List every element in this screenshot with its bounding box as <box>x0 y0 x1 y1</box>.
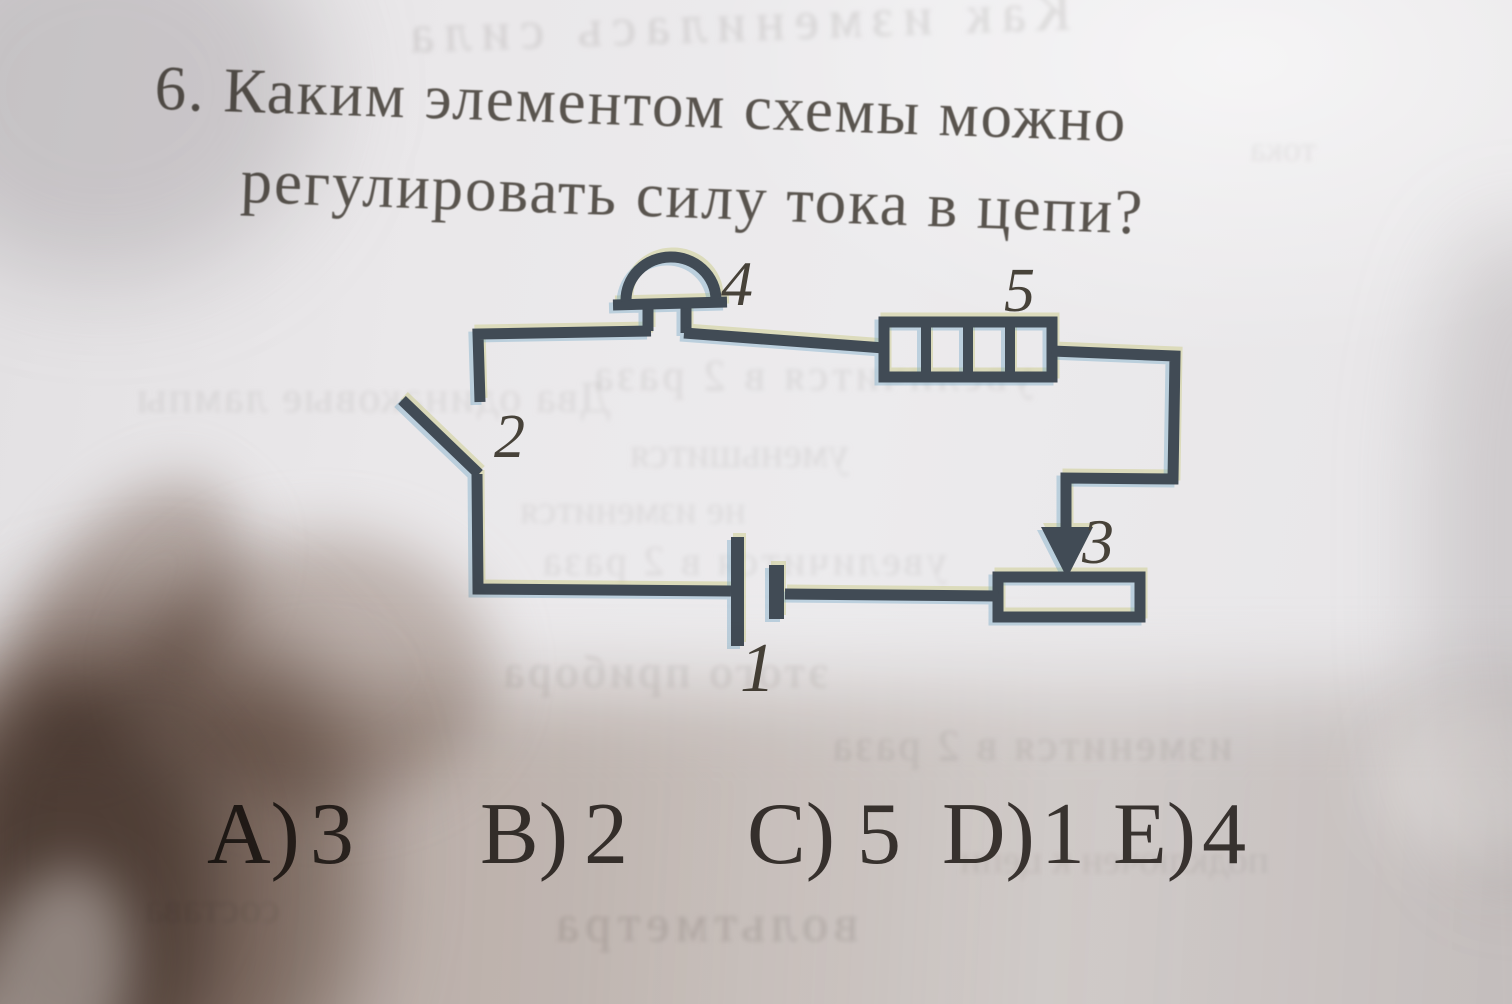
answer-value: 3 <box>310 791 354 879</box>
answer-option-a: A)3 <box>207 791 354 879</box>
answer-value: 4 <box>1202 791 1246 879</box>
answer-option-d: D)1 <box>942 791 1085 879</box>
answer-option-e: E)4 <box>1113 791 1246 879</box>
answer-option-c: C)5 <box>747 791 901 879</box>
photographed-textbook-page: Как изменилась сила тока увеличится в 2 … <box>0 0 1512 1004</box>
answer-value: 5 <box>857 791 901 879</box>
answer-letter: A) <box>207 786 300 883</box>
answer-value: 1 <box>1041 791 1085 879</box>
label-bell: 4 <box>721 252 753 316</box>
answer-letter: D) <box>942 786 1035 883</box>
answer-letter: B) <box>480 786 568 883</box>
answer-letter: E) <box>1113 786 1196 883</box>
label-battery: 1 <box>740 634 775 704</box>
label-resistor: 5 <box>1004 260 1035 322</box>
answer-option-b: B)2 <box>480 791 628 879</box>
answer-letter: C) <box>747 786 835 883</box>
label-switch: 2 <box>494 406 525 468</box>
answer-value: 2 <box>584 791 628 879</box>
label-rheostat: 3 <box>1082 510 1114 574</box>
